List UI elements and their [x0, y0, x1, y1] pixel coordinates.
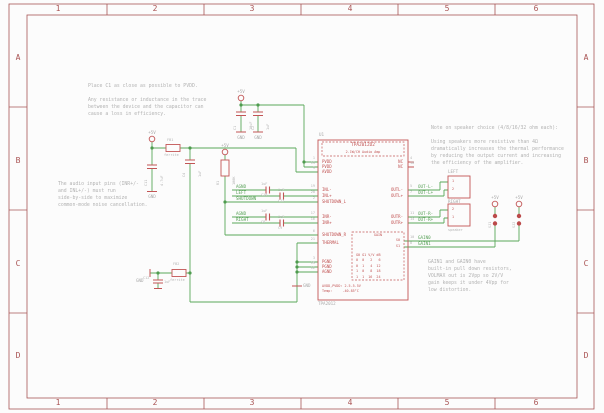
ic-ratings: AVDD,PVDD: 2.5-5.5V Temp: -40-85°C: [322, 284, 361, 295]
schematic-sheet: 1 2 3 4 5 6 1 2 3 4 5 6 A B C D A B C D …: [0, 0, 604, 413]
grid-col-label: 6: [526, 399, 546, 407]
ic-title: TPA2012D2: [322, 144, 404, 148]
ic-pin-name: NC: [364, 160, 403, 164]
p5v-label: +5V: [234, 90, 248, 94]
pin-num: 3: [302, 257, 315, 261]
ic-pin-name: INR+: [322, 221, 332, 225]
fb1-name: FB1: [167, 139, 173, 143]
ic-pin-name: THERMAL: [322, 241, 339, 245]
net-label-agnd[interactable]: AGND: [236, 185, 246, 189]
pin-num: 20: [302, 191, 315, 195]
grid-col-label: 3: [242, 399, 262, 407]
c11-value: 4.7uF: [161, 175, 165, 186]
pin-num: 19: [302, 185, 315, 189]
note-speaker-choice: Note on speaker choice (4/8/16/32 ohm ea…: [431, 126, 564, 168]
grid-row-label: D: [576, 352, 596, 360]
c13-value: 1uF: [278, 189, 284, 193]
conn-pin: 2: [452, 188, 454, 191]
c8-value: 1uF: [261, 210, 267, 214]
gain-box-title: GAIN: [352, 234, 404, 237]
gnd-label: GND: [303, 284, 311, 288]
ic-pin-name: OUTR-: [364, 215, 403, 219]
gain-pin-s1: S1: [380, 245, 400, 248]
grid-col-label: 5: [437, 399, 457, 407]
grid-col-label: 1: [48, 399, 68, 407]
net-label-gain0[interactable]: GAIN0: [418, 236, 431, 240]
ic-value: TPA2012: [318, 302, 336, 306]
right-conn-name: RIGHT: [448, 200, 461, 204]
ic-pin-name: OUTL-: [364, 188, 403, 192]
conn-pin: 1: [452, 180, 454, 183]
net-label-right[interactable]: RIGHT: [236, 218, 249, 222]
gnd-label: GND: [234, 136, 248, 140]
pin-num: 11: [410, 212, 414, 216]
pin-num: 1: [302, 157, 315, 161]
grid-col-label: 4: [340, 399, 360, 407]
c8-name: C8: [261, 221, 265, 225]
grid-row-label: C: [8, 260, 28, 268]
ic-pin-name: AGND: [322, 270, 332, 274]
c11-name: C11: [145, 180, 149, 186]
note-gain-pulldown: GAIN1 and GAIN0 have built-in pull down …: [428, 260, 512, 295]
resistor-r1[interactable]: [221, 160, 229, 176]
fb2-value: ferrite: [170, 279, 185, 283]
net-label-out-r-n[interactable]: OUT-R-: [418, 212, 433, 216]
left-conn-name: LEFT: [448, 170, 458, 174]
grid-col-label: 4: [340, 5, 360, 13]
net-label-shutdown[interactable]: SHUTDOWN: [236, 197, 256, 201]
pin-num: 12: [302, 267, 315, 271]
sj2-name: SJ2: [513, 222, 517, 228]
sj1-name: SJ1: [489, 222, 493, 228]
pin-num: 7: [410, 191, 412, 195]
ic-pin-name: OUTR+: [364, 221, 403, 225]
conn-pin: 2: [452, 208, 454, 211]
net-label-out-r-p[interactable]: OUT-R+: [418, 218, 433, 222]
pin-num: 10: [410, 236, 414, 240]
ic-pin-name: INL+: [322, 194, 332, 198]
ic-pin-name: AVDD: [322, 170, 332, 174]
ic-pin-name: SHUTDOWN_L: [322, 200, 346, 204]
ic-pin-name: OUTL+: [364, 194, 403, 198]
grid-col-label: 1: [48, 5, 68, 13]
c10-name: C10: [261, 194, 267, 198]
grid-col-label: 5: [437, 5, 457, 13]
c1-name: C1: [234, 126, 238, 130]
ferrite-fb2[interactable]: [172, 270, 186, 277]
pin-num: 14: [410, 218, 414, 222]
ic-pin-name: INR-: [322, 215, 332, 219]
solder-jumper-sj2[interactable]: [517, 214, 521, 226]
pin-num: 5: [410, 185, 412, 189]
grid-row-label: C: [576, 260, 596, 268]
c2-value: 1uF: [267, 124, 271, 130]
note-place-c1: Place C1 as close as possible to PVDD. A…: [88, 84, 206, 119]
fb1-value: ferrite: [164, 154, 179, 158]
net-label-agnd[interactable]: AGND: [236, 212, 246, 216]
pin-num: 6: [302, 230, 315, 234]
ic-refdes[interactable]: U1: [319, 133, 324, 137]
ferrite-fb1[interactable]: [166, 145, 180, 152]
c12-value: 1uF: [164, 281, 170, 285]
net-label-left[interactable]: LEFT: [236, 191, 246, 195]
c10-value: 1uF: [261, 183, 267, 187]
pin-num: 4: [410, 157, 412, 161]
grid-row-label: D: [8, 352, 28, 360]
gnd-label: GND: [145, 195, 159, 199]
ic-subtitle: 2.1W/CH Audio Amp: [322, 151, 404, 154]
grid-col-label: 2: [145, 5, 165, 13]
gain-pin-s0: S0: [380, 239, 400, 242]
p5v-label: +5V: [512, 196, 526, 200]
p5v-label: +5V: [488, 196, 502, 200]
pin-num: 16: [302, 218, 315, 222]
net-label-gain1[interactable]: GAIN1: [418, 242, 431, 246]
gain-table: G0 G1 V/V dB 0 0 2 6 0 1 4 12 1 0 8 18 1…: [356, 253, 381, 280]
grid-row-label: B: [576, 157, 596, 165]
c2-name: C2: [252, 126, 256, 130]
pin-num: 17: [302, 212, 315, 216]
ic-pin-name: SHUTDOWN_R: [322, 233, 346, 237]
grid-col-label: 2: [145, 399, 165, 407]
pin-num: 18: [410, 162, 414, 166]
gnd-label: GND: [251, 136, 265, 140]
right-conn-value: speaker: [448, 229, 463, 233]
grid-col-label: 3: [242, 5, 262, 13]
c9-name: C9: [278, 227, 282, 231]
grid-col-label: 6: [526, 5, 546, 13]
pin-num: 13: [302, 162, 315, 166]
c13-name: C13: [278, 200, 284, 204]
net-label-out-l-n[interactable]: OUT-L-: [418, 185, 433, 189]
pin-num: 9: [302, 167, 315, 171]
c4-value: 1uF: [199, 171, 203, 177]
pin-num: 8: [410, 242, 412, 246]
grid-row-label: A: [576, 54, 596, 62]
solder-jumper-sj1[interactable]: [493, 214, 497, 226]
p5v-label: +5V: [145, 131, 159, 135]
grid-row-label: A: [8, 54, 28, 62]
conn-pin: 1: [452, 216, 454, 219]
net-label-out-l-p[interactable]: OUT-L+: [418, 191, 433, 195]
p5v-label: +5V: [218, 144, 232, 148]
pin-num: 15: [302, 262, 315, 266]
ic-pin-name: INL-: [322, 188, 332, 192]
c4-name: C4: [183, 173, 187, 177]
c9-value: 1uF: [278, 216, 284, 220]
pin-num: 21: [302, 238, 315, 242]
c12-name: C12: [143, 277, 149, 281]
r1-name: R1: [217, 181, 221, 185]
ic-pin-name: NC: [364, 165, 403, 169]
grid-row-label: B: [8, 157, 28, 165]
fb2-name: FB2: [173, 263, 179, 267]
note-audio-inputs: The audio input pins (INR+/- and INL+/-)…: [58, 182, 148, 210]
r1-value: 100K: [233, 177, 237, 185]
pin-num: 2: [302, 197, 315, 201]
